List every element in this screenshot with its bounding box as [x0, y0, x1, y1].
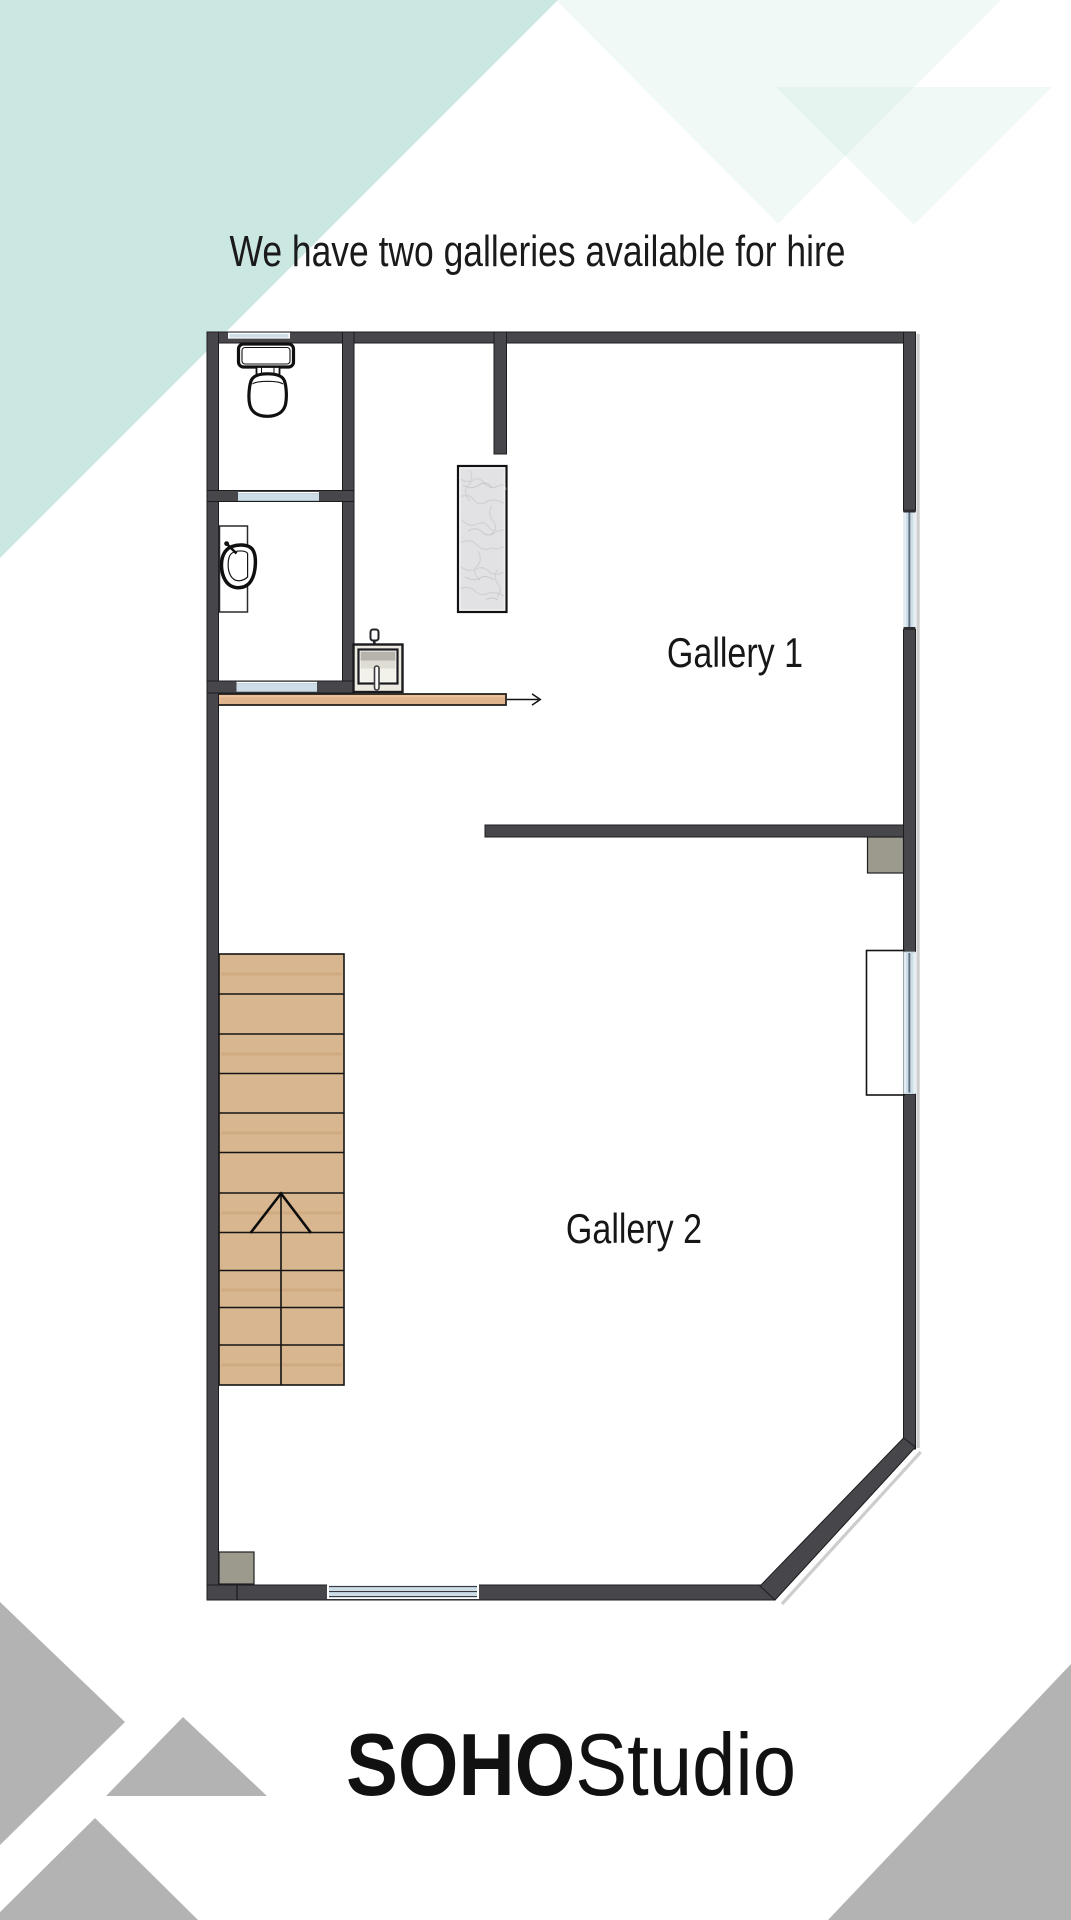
svg-text:SOHOStudio: SOHOStudio	[346, 1716, 796, 1814]
svg-text:Gallery 2: Gallery 2	[566, 1207, 702, 1253]
svg-text:Gallery 1: Gallery 1	[667, 631, 803, 677]
svg-text:We have two galleries availabl: We have two galleries available for hire	[229, 228, 845, 276]
